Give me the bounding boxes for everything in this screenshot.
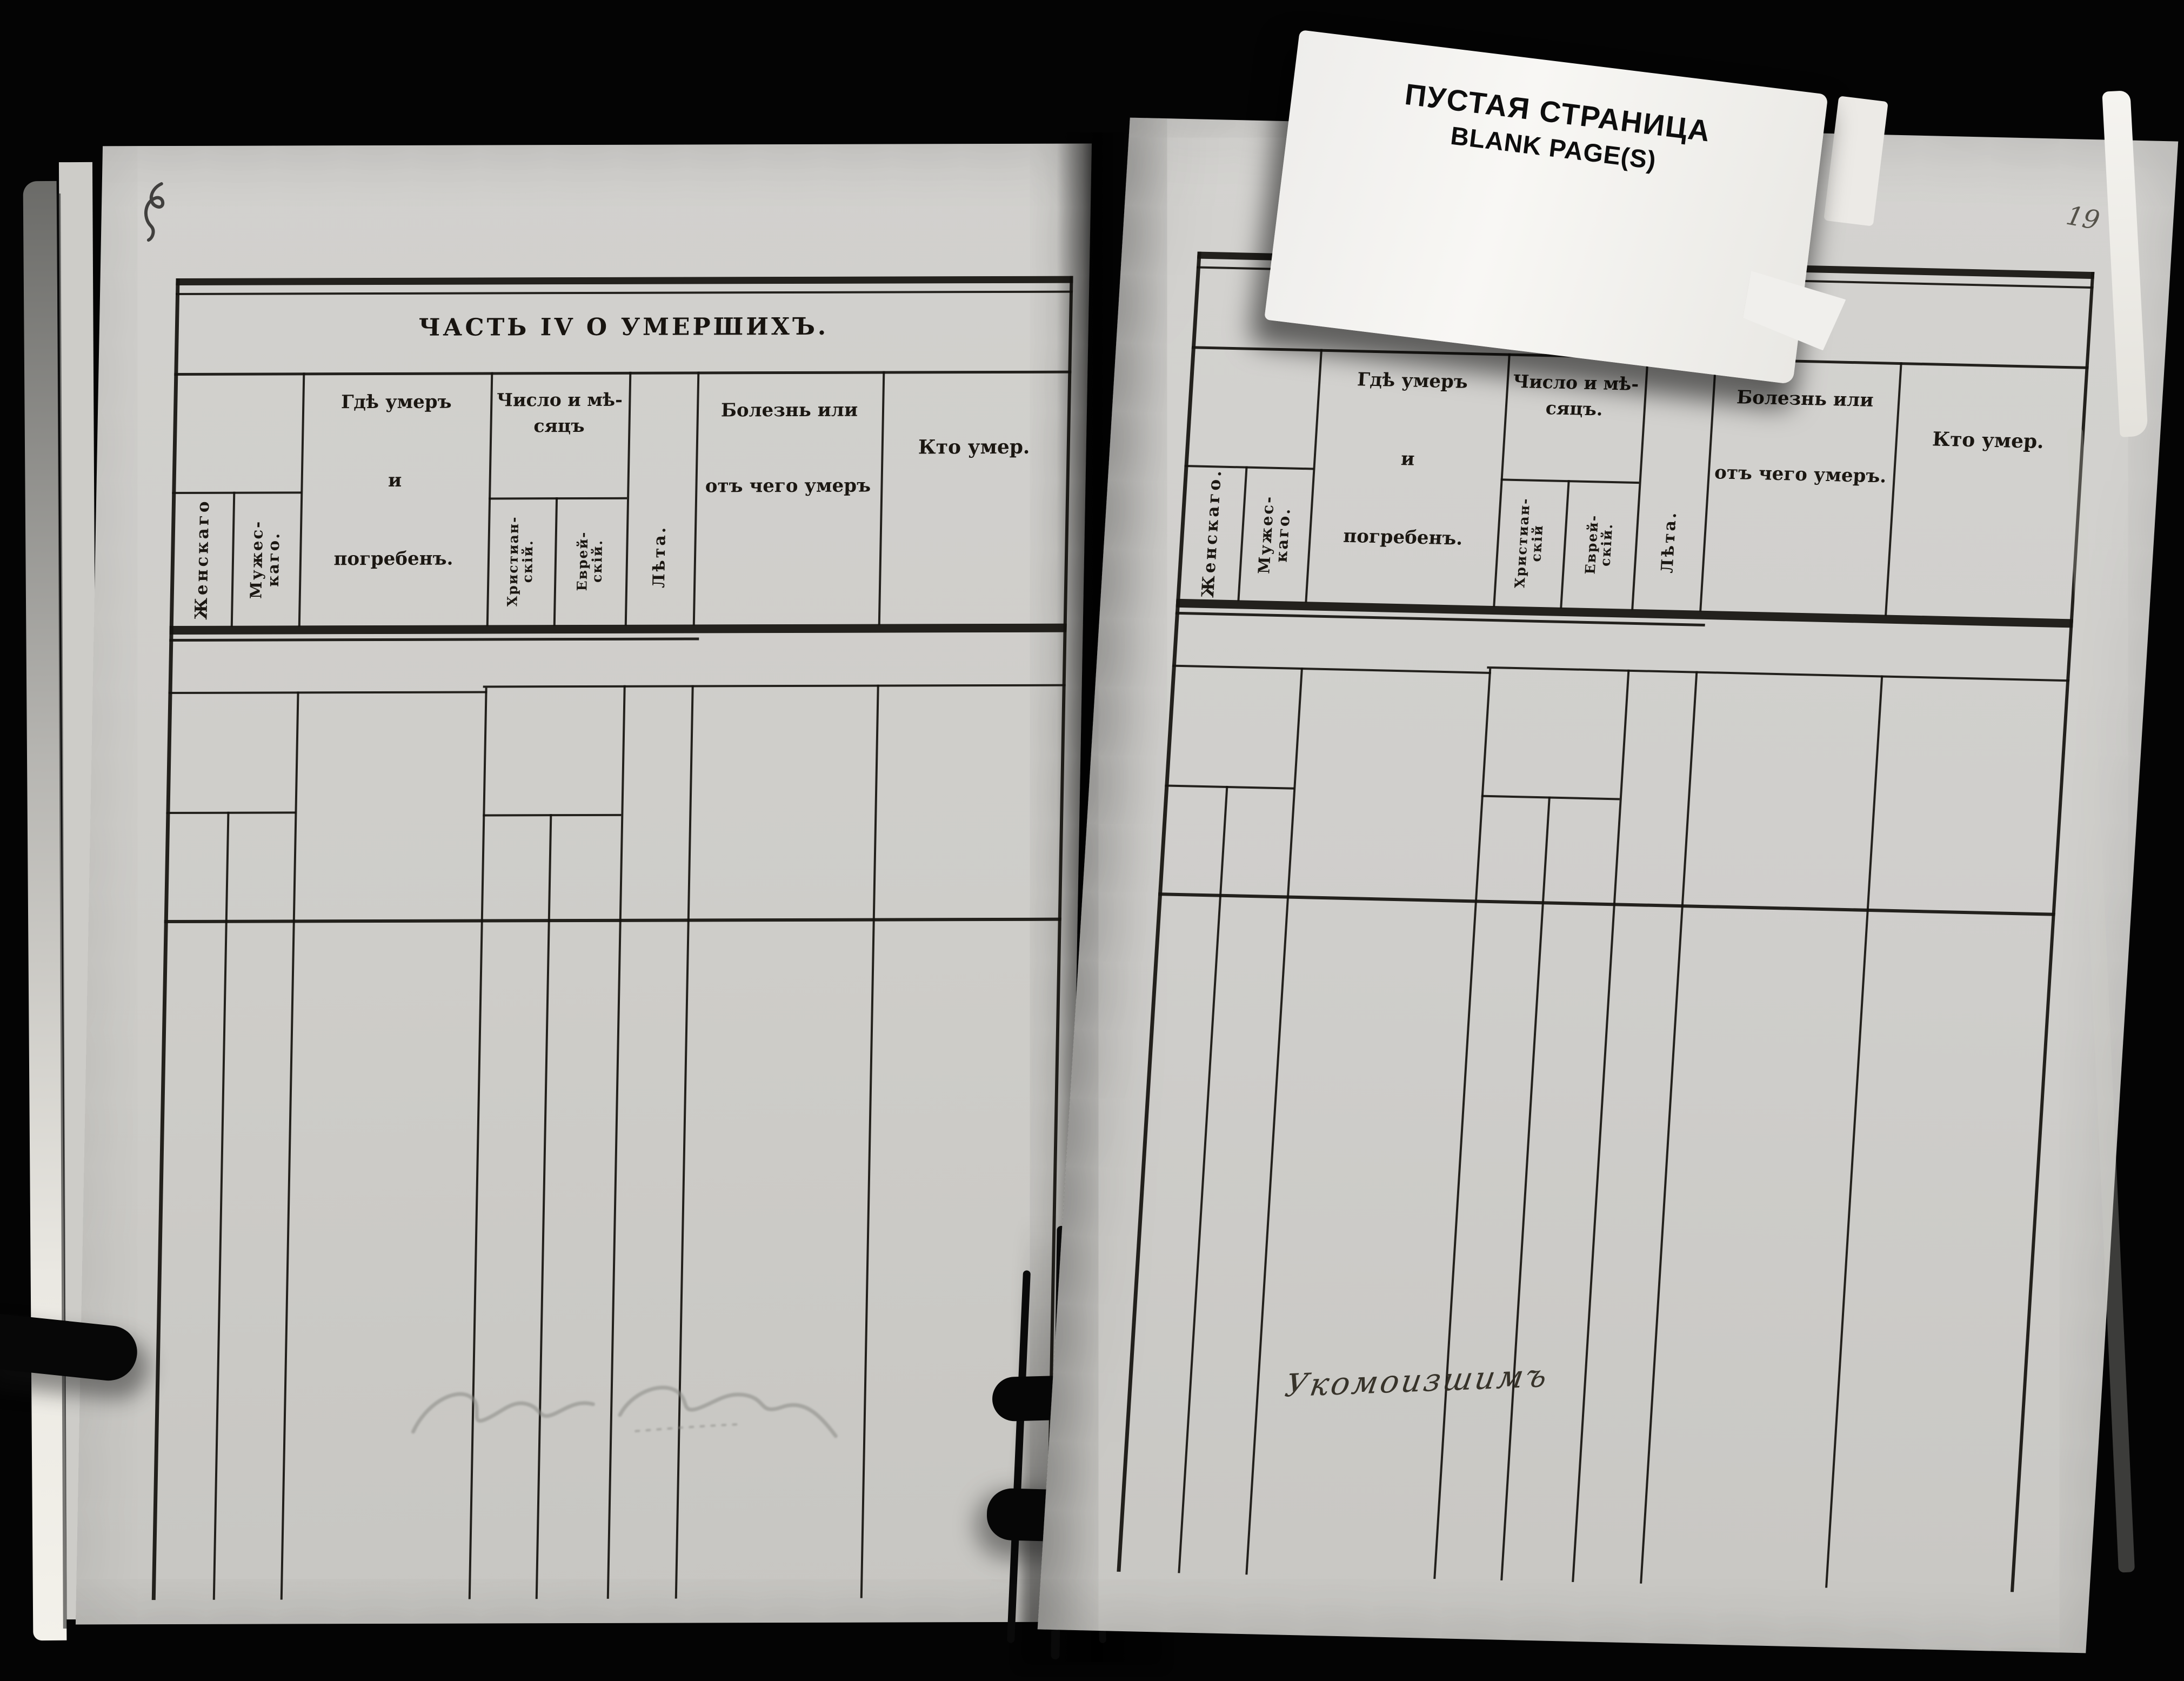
col-illness-line1: Болезнь или bbox=[1714, 386, 1896, 412]
col-female: Женскаго bbox=[174, 495, 231, 624]
body-top-rule-b bbox=[483, 684, 1066, 688]
col-date-line1: Число и мѣ- bbox=[1507, 371, 1645, 395]
title-rule bbox=[174, 371, 1071, 376]
col-age: Лѣта. bbox=[1633, 475, 1705, 609]
col-male: Мужес-каго. bbox=[232, 494, 298, 624]
page-title: ЧАСТЬ IV О УМЕРШИХЪ. bbox=[175, 312, 1072, 342]
row-bottom-rule bbox=[164, 918, 1061, 923]
col-where-line2: и bbox=[1315, 446, 1500, 472]
body-gender-rule bbox=[1165, 784, 1294, 789]
header-bottom-rule-2 bbox=[169, 637, 699, 642]
table-left-border bbox=[1117, 251, 1201, 1571]
left-page: ЧАСТЬ IV О УМЕРШИХЪ. Гдѣ умеръ и погребе… bbox=[76, 144, 1092, 1625]
gender-split-rule bbox=[172, 491, 302, 494]
col-date-line2: сяцъ bbox=[491, 415, 627, 437]
col-jewish: Еврей-скій. bbox=[555, 499, 625, 623]
page-number: 19 bbox=[2063, 201, 2102, 236]
col-div-date-age-b bbox=[1572, 670, 1629, 1582]
col-illness-line2: отъ чего умеръ. bbox=[1709, 462, 1892, 488]
col-div-christian-jewish-b bbox=[536, 814, 552, 1599]
body-gender-rule bbox=[166, 811, 296, 814]
table-left-border bbox=[152, 278, 180, 1600]
col-who: Кто умер. bbox=[883, 436, 1065, 459]
col-where-line2: и bbox=[303, 469, 487, 491]
body-top-rule-b bbox=[1487, 666, 2069, 682]
col-div-age-illness-b bbox=[1640, 671, 1698, 1584]
col-div-female-male-b bbox=[1178, 786, 1228, 1573]
col-male: Мужес-каго. bbox=[1239, 469, 1311, 600]
scanned-register-photo: ЧАСТЬ IV О УМЕРШИХЪ. Гдѣ умеръ и погребе… bbox=[0, 0, 2184, 1681]
col-div-illness-who-b bbox=[1825, 675, 1883, 1587]
col-div-christian-jewish-b bbox=[1500, 796, 1551, 1580]
ink-squiggle bbox=[132, 179, 182, 244]
col-div-illness-who-b bbox=[860, 685, 879, 1598]
table-top-border bbox=[176, 276, 1073, 285]
col-div-male-where-b bbox=[280, 691, 299, 1599]
col-who: Кто умер. bbox=[1897, 427, 2079, 454]
col-where-line3: погребенъ. bbox=[302, 548, 486, 570]
col-date-line1: Число и мѣ- bbox=[491, 389, 628, 411]
col-female: Женскаго. bbox=[1181, 468, 1244, 598]
col-div-where-date-b bbox=[1433, 669, 1491, 1579]
col-div-female-male-b bbox=[213, 812, 230, 1600]
header-bottom-rule bbox=[169, 624, 1066, 635]
table-top-border-thin bbox=[176, 291, 1073, 295]
body-top-rule-a bbox=[168, 691, 487, 694]
col-div-male-where-b bbox=[1245, 668, 1303, 1575]
col-date-line2: сяцъ. bbox=[1506, 397, 1643, 421]
body-top-rule-a bbox=[1172, 665, 1491, 674]
col-illness-line2: отъ чего умеръ bbox=[697, 475, 879, 497]
showthrough-handwriting bbox=[403, 1350, 848, 1464]
col-illness-line1: Болезнь или bbox=[699, 399, 880, 422]
col-where-line3: погребенъ. bbox=[1311, 524, 1495, 550]
col-jewish: Еврей-скій. bbox=[1561, 482, 1637, 608]
col-where-line1: Гдѣ умеръ bbox=[1320, 368, 1505, 394]
col-age: Лѣта. bbox=[627, 490, 693, 623]
col-christian: Христиан-скій. bbox=[487, 499, 553, 623]
col-where-line1: Гдѣ умеръ bbox=[304, 391, 489, 413]
col-christian: Христиан-скій bbox=[1494, 480, 1566, 605]
row-bottom-rule bbox=[1158, 892, 2055, 916]
